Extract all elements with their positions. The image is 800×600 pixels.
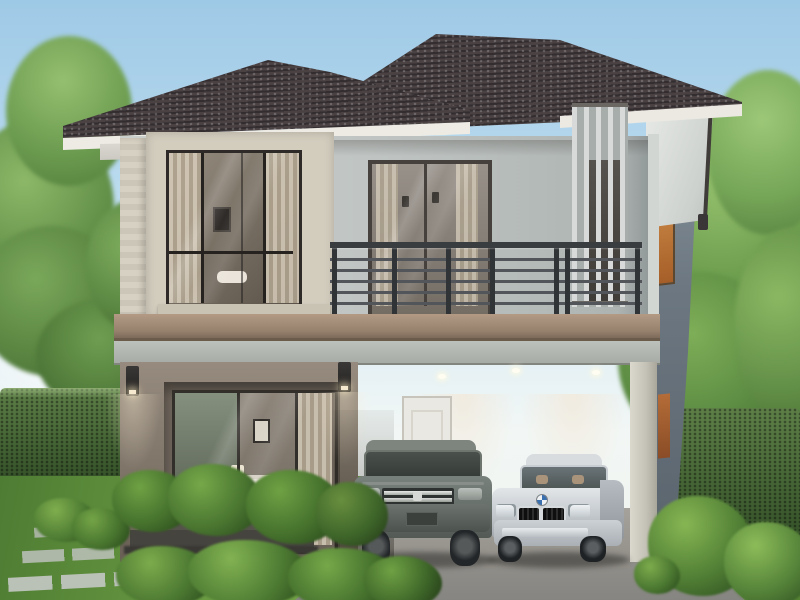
sedan-headlight [568,504,590,517]
interior-seat [536,475,548,484]
ceiling-downlight [512,368,520,373]
suv-wheel [450,530,480,566]
corner-trim-right [648,134,659,316]
shrub-right [724,522,800,600]
window-mullion [241,153,243,303]
side-accent-window-lower [658,393,670,458]
railing-top-rail [330,242,642,248]
railing-bar [330,280,642,283]
brand-emblem [413,492,422,501]
sedan-wheel [580,536,606,562]
railing-post [332,242,337,314]
balcony-railing [330,242,642,314]
sedan-wheel [498,536,522,562]
suv-grille [382,488,454,505]
railing-post [490,242,495,314]
ceiling-downlight [592,370,600,375]
railing-bar [330,258,642,261]
bay-window-glass [166,150,302,312]
shrub-row-front [316,482,388,546]
sconce-glow [102,394,164,476]
railing-bar [330,302,642,305]
louver-rail-top [572,103,628,107]
railing-post [554,242,559,314]
railing-bar [330,291,642,294]
sconce-light [341,386,348,390]
ceiling-downlight [438,374,446,379]
window-mullion [201,153,204,303]
license-plate [406,512,438,526]
carport-ceiling [358,360,630,394]
downspout-end [698,214,708,230]
railing-post [392,242,397,314]
railing-post [446,242,451,314]
window-mullion [263,153,266,303]
railing-post [565,242,570,314]
wall-sconce-left [126,366,139,396]
glass-reflection [169,153,293,303]
window-transom [169,251,293,254]
railing-post [635,242,640,314]
wall-sconce-right [338,362,351,392]
railing-bar [330,269,642,272]
sedan-headlight [496,504,516,517]
suv-hood-line [362,482,484,485]
shrub-right [634,556,680,594]
suv-headlight [458,488,482,500]
floor-band [114,314,660,341]
sedan-car [492,452,624,568]
stone-pillar-left [120,138,146,316]
house-rendering-scene [0,0,800,600]
brand-roundel [536,494,548,506]
interior-seat [572,475,584,484]
